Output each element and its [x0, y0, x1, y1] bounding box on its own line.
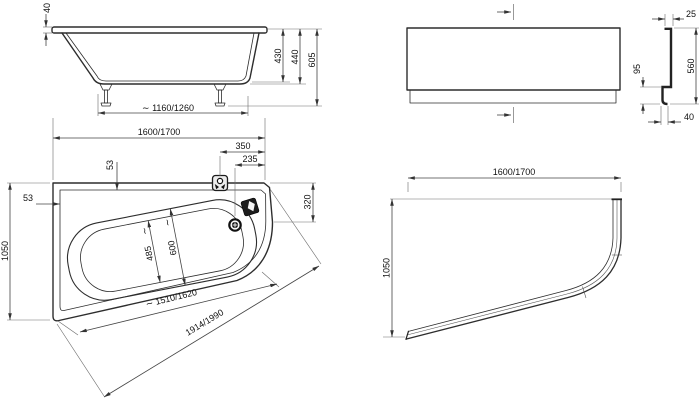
dim-well-length: ∼ 1510/1620 [58, 272, 279, 335]
dim-rim-left: 53 [23, 193, 60, 204]
approx-tilde: ∼ [162, 218, 173, 227]
dim-rim-top: 53 [105, 160, 117, 190]
dim-label: ∼ 1160/1260 [142, 103, 194, 113]
dim-label: 40 [684, 112, 694, 122]
dim-well-inner-width: 485 ∼ [138, 221, 160, 285]
well-outer-edge [61, 194, 262, 307]
overflow-fitting-icon [213, 176, 228, 191]
dim-label: 53 [105, 160, 115, 170]
plan-view: 485 ∼ 600 ∼ [0, 141, 321, 397]
dim-apron-length: 1600/1700 [408, 167, 621, 192]
well-inner-edge [75, 203, 248, 296]
dim-label: 1050 [0, 241, 10, 261]
bathtub-dimension-drawing: 40 430 440 605 ∼ 1160/1260 1600/17 [0, 0, 700, 408]
dim-label: 40 [42, 3, 52, 13]
corner-panel-plan-view: 1600/1700 1050 [382, 167, 623, 340]
dim-feet-spacing: ∼ 1160/1260 [98, 94, 248, 116]
dim-label: 320 [303, 194, 313, 209]
dim-length: 1600/1700 [53, 118, 265, 180]
centerline-mark-icon [497, 4, 514, 123]
dim-label-depth: 430 [273, 48, 283, 63]
dim-base-depth: 40 [648, 106, 694, 125]
tub-body-outline [62, 33, 259, 84]
dim-right-edge: 320 [270, 183, 316, 222]
tub-foot-right [214, 84, 226, 106]
front-panel-view: 25 560 95 40 [407, 4, 699, 125]
dim-heights: 430 440 605 [228, 29, 322, 106]
dim-top-lip: 25 [652, 9, 696, 26]
technical-drawing: 40 430 440 605 ∼ 1160/1260 1600/17 [0, 0, 700, 408]
approx-tilde: ∼ [139, 226, 150, 235]
panel-face [407, 28, 620, 90]
panel-plinth [410, 90, 616, 103]
panel-profile-section [663, 29, 672, 104]
tub-rim-side [52, 27, 267, 33]
curved-apron-band [406, 199, 622, 340]
bathing-well: 485 ∼ 600 ∼ [61, 194, 262, 307]
side-elevation-view: 40 430 440 605 ∼ 1160/1260 1600/17 [42, 3, 322, 180]
dim-label: 1914/1990 [184, 307, 226, 337]
tub-body-inner-line [66, 33, 254, 81]
dim-plinth-height: 95 [632, 64, 661, 114]
dim-label: 350 [235, 141, 250, 151]
dim-label: 53 [23, 193, 33, 203]
dim-plan-width: 1050 [0, 183, 50, 320]
dim-label: 1050 [382, 258, 392, 278]
dim-label: 560 [686, 58, 696, 73]
dim-label-total-height: 605 [307, 52, 317, 67]
dim-label: 1600/1700 [138, 127, 181, 137]
grab-handle-icon [241, 198, 260, 217]
tub-foot-left [100, 84, 112, 106]
dim-label-body-height: 440 [290, 49, 300, 64]
drain-icon [228, 218, 242, 232]
dim-panel-height: 560 [670, 28, 699, 104]
dim-label: 235 [242, 154, 257, 164]
dim-rim-thickness: 40 [42, 3, 52, 46]
dim-well-outer-width: 600 ∼ [160, 209, 185, 288]
dim-label: 95 [632, 64, 642, 74]
dim-label: 1600/1700 [493, 167, 536, 177]
dim-label: 25 [686, 9, 696, 19]
